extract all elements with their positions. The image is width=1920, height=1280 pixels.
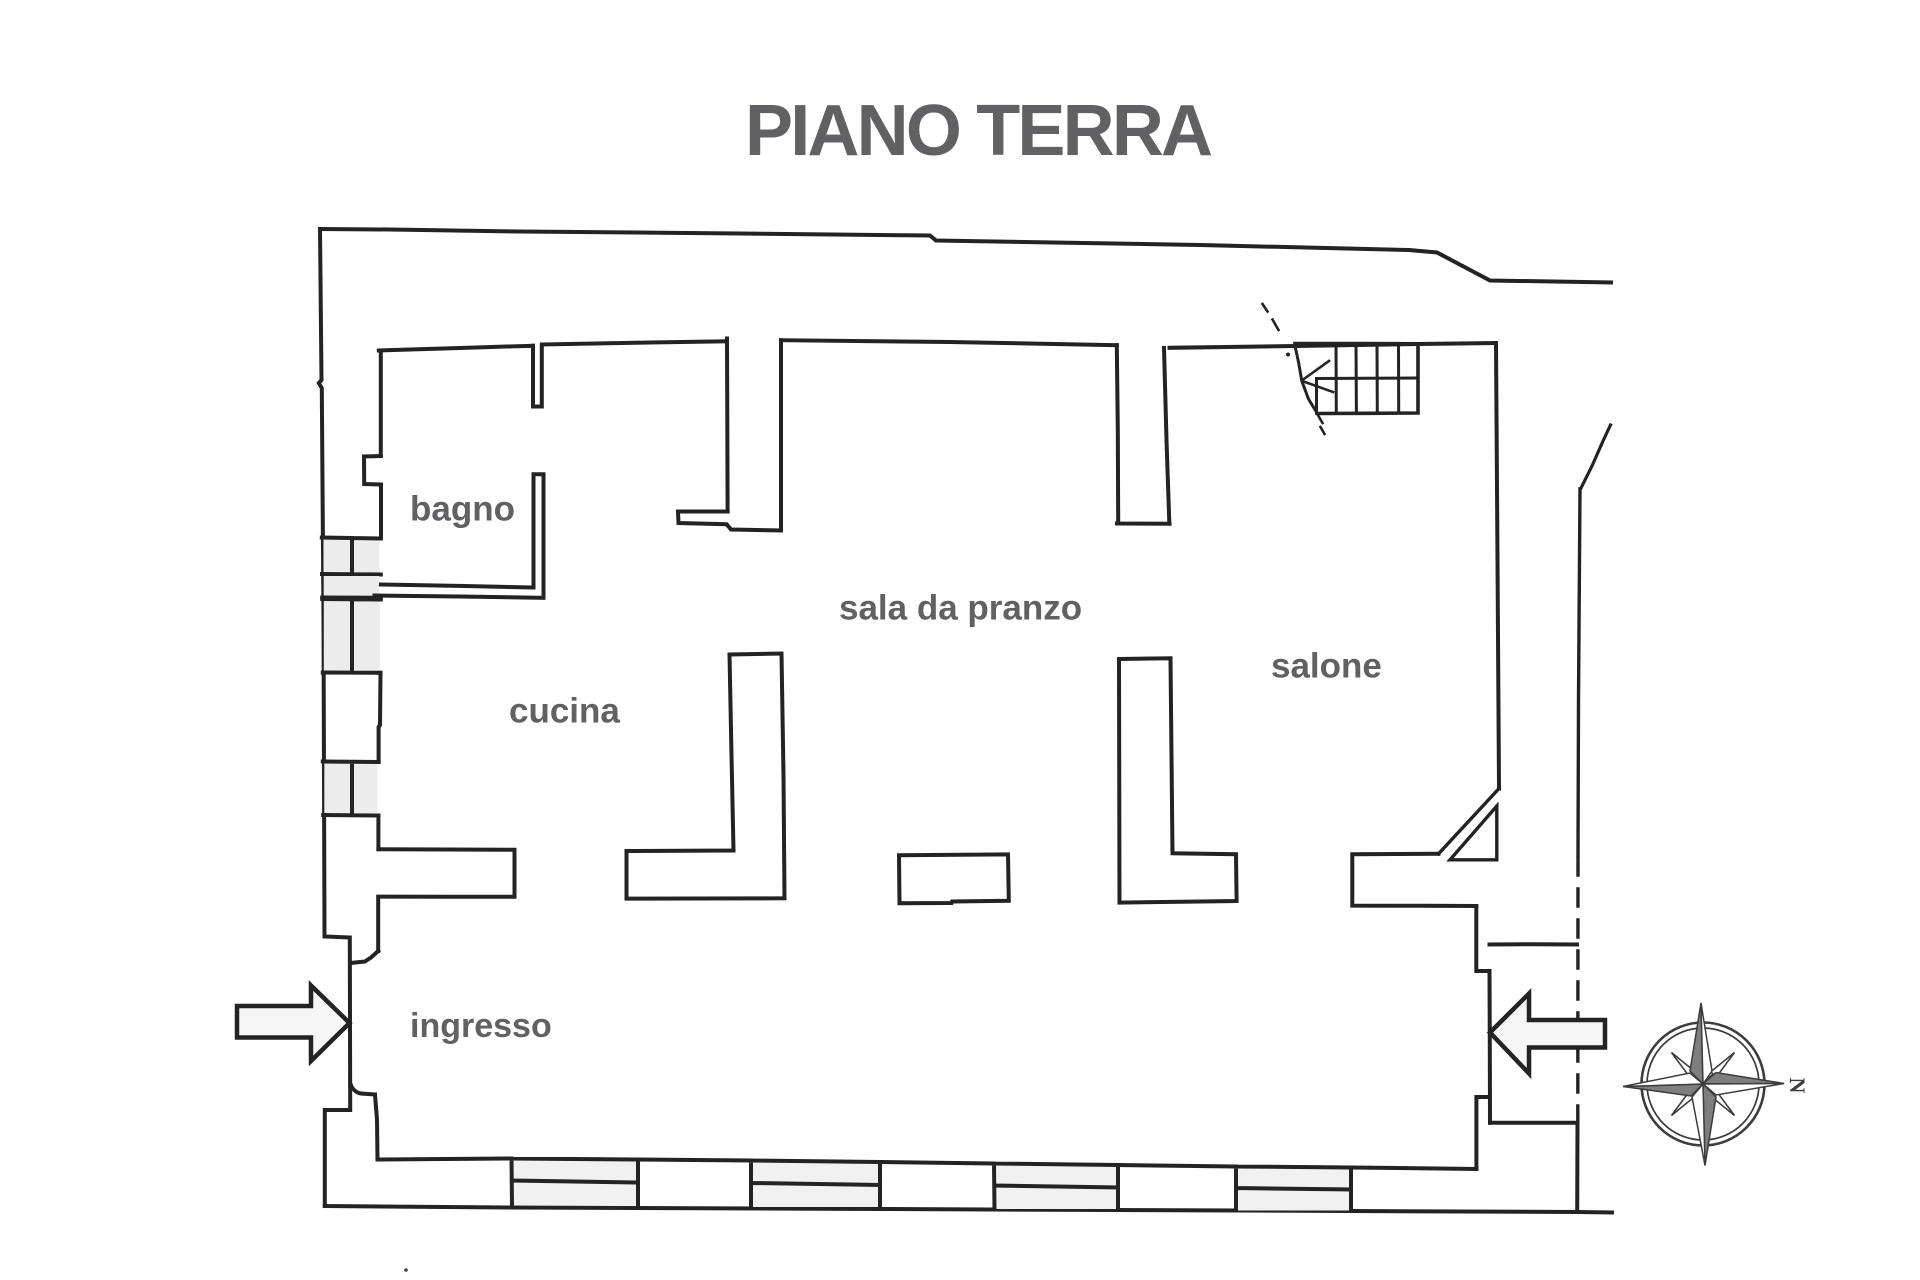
svg-text:salone: salone — [1271, 647, 1382, 686]
svg-text:cucina: cucina — [509, 692, 620, 731]
svg-text:bagno: bagno — [410, 490, 515, 529]
svg-text:sala da pranzo: sala da pranzo — [839, 589, 1082, 628]
svg-text:ingresso: ingresso — [410, 1007, 552, 1045]
svg-text:PIANO TERRA: PIANO TERRA — [745, 91, 1212, 171]
svg-text:N: N — [1785, 1078, 1810, 1094]
